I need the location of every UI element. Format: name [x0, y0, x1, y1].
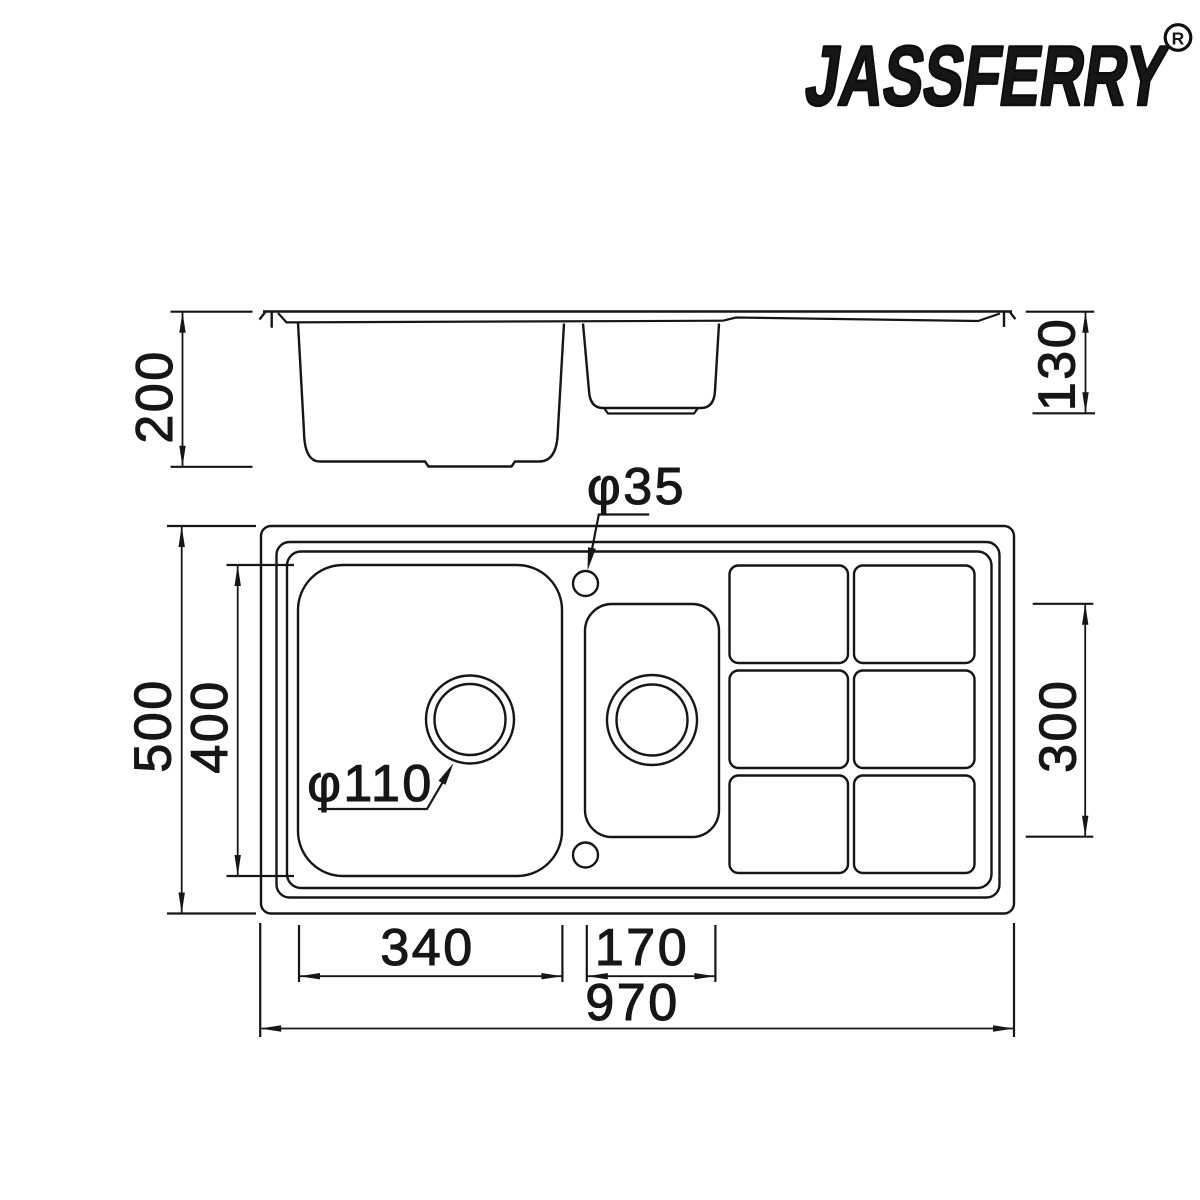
svg-text:970: 970: [585, 974, 679, 1032]
svg-text:200: 200: [126, 349, 184, 443]
svg-text:340: 340: [380, 919, 474, 977]
svg-text:φ35: φ35: [587, 458, 686, 516]
svg-text:300: 300: [1029, 679, 1087, 773]
svg-text:400: 400: [181, 679, 239, 773]
svg-text:130: 130: [1029, 317, 1087, 411]
svg-text:500: 500: [124, 678, 182, 772]
svg-text:170: 170: [595, 919, 689, 977]
svg-text:R: R: [1172, 29, 1185, 49]
svg-text:JASSFERRY: JASSFERRY: [800, 29, 1172, 124]
svg-text:φ110: φ110: [307, 755, 434, 813]
